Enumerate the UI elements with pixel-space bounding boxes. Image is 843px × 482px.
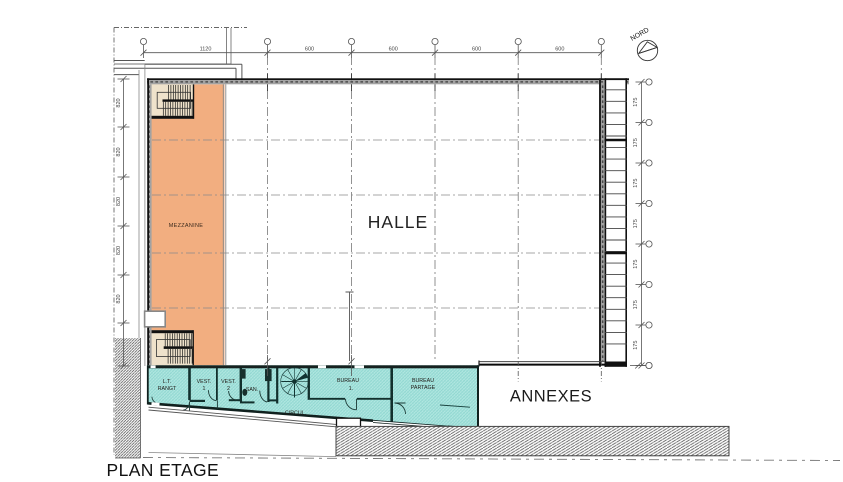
svg-text:600: 600 xyxy=(305,47,314,53)
svg-text:PLAN ETAGE: PLAN ETAGE xyxy=(107,460,220,477)
svg-text:MEZZANINE: MEZZANINE xyxy=(169,223,204,229)
svg-text:CIRCUL.: CIRCUL. xyxy=(285,411,306,417)
svg-text:820: 820 xyxy=(116,246,122,255)
svg-text:820: 820 xyxy=(116,294,122,303)
svg-text:VEST.: VEST. xyxy=(197,379,212,385)
svg-text:1120: 1120 xyxy=(200,47,212,53)
svg-text:ANNEXES: ANNEXES xyxy=(510,388,592,406)
svg-text:VEST.: VEST. xyxy=(221,379,236,385)
svg-text:175: 175 xyxy=(633,219,639,228)
svg-text:820: 820 xyxy=(116,197,122,206)
svg-text:820: 820 xyxy=(116,98,122,107)
svg-text:600: 600 xyxy=(472,47,481,53)
svg-text:1.: 1. xyxy=(349,386,353,392)
svg-text:HALLE: HALLE xyxy=(368,212,428,232)
svg-text:175: 175 xyxy=(633,138,639,147)
svg-text:BUREAU: BUREAU xyxy=(337,378,359,384)
svg-text:600: 600 xyxy=(389,47,398,53)
svg-text:820: 820 xyxy=(116,147,122,156)
svg-text:175: 175 xyxy=(633,341,639,350)
svg-text:600: 600 xyxy=(555,47,564,53)
svg-text:1: 1 xyxy=(203,386,206,392)
svg-text:SAN.: SAN. xyxy=(246,387,258,393)
svg-text:175: 175 xyxy=(633,260,639,269)
svg-text:175: 175 xyxy=(633,300,639,309)
svg-text:L.T.: L.T. xyxy=(163,379,172,385)
svg-text:PARTAGE: PARTAGE xyxy=(411,385,436,391)
svg-text:175: 175 xyxy=(633,179,639,188)
svg-text:175: 175 xyxy=(633,98,639,107)
svg-text:BUREAU: BUREAU xyxy=(412,378,434,384)
svg-text:RANGT: RANGT xyxy=(158,386,177,392)
svg-text:2: 2 xyxy=(227,386,230,392)
